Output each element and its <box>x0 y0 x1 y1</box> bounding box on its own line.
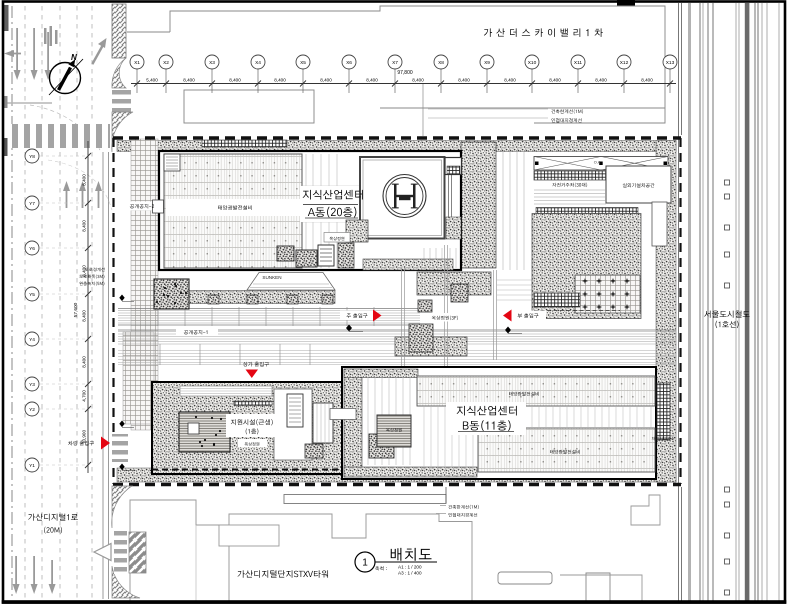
svg-text:X2: X2 <box>163 60 169 66</box>
svg-text:X1: X1 <box>134 60 140 66</box>
svg-text:Y4: Y4 <box>29 337 35 343</box>
svg-text:O.A: O.A <box>594 161 601 165</box>
svg-text:X13: X13 <box>666 60 675 66</box>
svg-text:N: N <box>71 53 77 62</box>
svg-text:8,400: 8,400 <box>229 78 241 83</box>
svg-text:8,400: 8,400 <box>549 78 561 83</box>
svg-text:Y1: Y1 <box>29 463 35 469</box>
svg-text:8,400: 8,400 <box>183 78 195 83</box>
svg-text:8,400: 8,400 <box>320 78 332 83</box>
svg-text:8,400: 8,400 <box>366 78 378 83</box>
svg-text:Y8: Y8 <box>29 154 35 160</box>
svg-text:X8: X8 <box>438 60 444 66</box>
svg-text:X10: X10 <box>528 60 537 66</box>
svg-text:SUNKEN: SUNKEN <box>262 275 281 280</box>
svg-text:X4: X4 <box>255 60 261 66</box>
svg-text:Y7: Y7 <box>29 201 35 207</box>
svg-text:X11: X11 <box>574 60 583 66</box>
svg-text:8,400: 8,400 <box>274 78 286 83</box>
svg-text:X9: X9 <box>484 60 490 66</box>
svg-text:X3: X3 <box>209 60 215 66</box>
svg-text:Y5: Y5 <box>29 292 35 298</box>
svg-text:4,700: 4,700 <box>82 390 87 402</box>
svg-text:A3 : 1 / 400: A3 : 1 / 400 <box>398 571 422 576</box>
svg-text:X5: X5 <box>300 60 306 66</box>
svg-text:8,400: 8,400 <box>504 78 516 83</box>
svg-text:97,800: 97,800 <box>397 70 413 76</box>
svg-text:Y3: Y3 <box>29 382 35 388</box>
svg-text:8,400: 8,400 <box>458 78 470 83</box>
svg-text:5,400: 5,400 <box>146 78 158 83</box>
svg-text:8,400: 8,400 <box>595 78 607 83</box>
svg-text:Y2: Y2 <box>29 407 35 413</box>
svg-text:A1 : 1 / 200: A1 : 1 / 200 <box>398 565 422 570</box>
svg-text:8,400: 8,400 <box>412 78 424 83</box>
svg-text:Y6: Y6 <box>29 246 35 252</box>
svg-text:1: 1 <box>362 558 368 569</box>
svg-text:X12: X12 <box>620 60 629 66</box>
svg-text:57,600: 57,600 <box>73 302 79 317</box>
svg-text:X6: X6 <box>346 60 352 66</box>
svg-text:8,400: 8,400 <box>82 310 87 322</box>
svg-text:8,400: 8,400 <box>82 220 87 232</box>
svg-text:X7: X7 <box>392 60 398 66</box>
svg-text:10,900: 10,900 <box>82 430 87 444</box>
svg-text:8,400: 8,400 <box>641 78 653 83</box>
svg-text:8,400: 8,400 <box>82 174 87 186</box>
svg-text:8,400: 8,400 <box>82 356 87 368</box>
